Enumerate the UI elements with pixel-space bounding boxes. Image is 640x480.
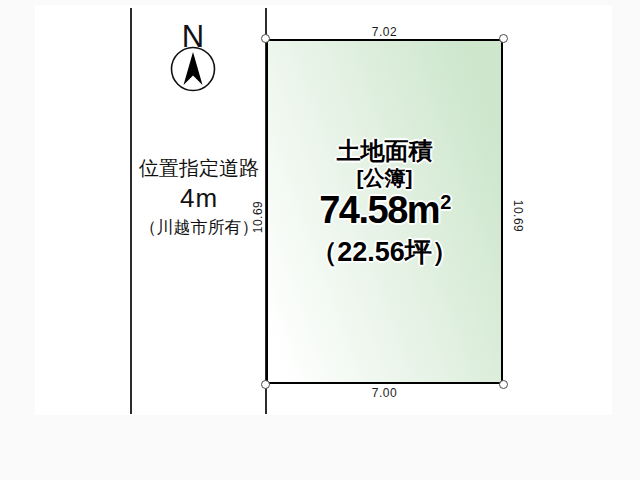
compass: N	[166, 16, 220, 94]
dimension-bottom: 7.00	[266, 386, 503, 400]
area-title-label: 土地面積	[268, 137, 501, 165]
dimension-left: 10.69	[251, 197, 265, 237]
area-tsubo-label: （22.56坪）	[268, 236, 501, 268]
dimension-right: 10.69	[511, 196, 525, 236]
area-m2-superscript: 2	[440, 191, 450, 213]
area-value-label: 74.58m2	[268, 190, 501, 236]
dimension-top: 7.02	[266, 25, 503, 39]
diagram-canvas: N 位置指定道路 4m （川越市所有） 土地面積 [公簿] 74.58m2 （2…	[35, 5, 612, 415]
area-m2-text: 74.58m	[319, 189, 439, 231]
road-name-label: 位置指定道路	[132, 157, 266, 180]
land-plot: 土地面積 [公簿] 74.58m2 （22.56坪）	[266, 39, 503, 384]
register-label: [公簿]	[268, 165, 501, 190]
road-owner-label: （川越市所有）	[132, 217, 266, 239]
road-label: 位置指定道路 4m （川越市所有）	[132, 157, 266, 239]
compass-icon: N	[166, 16, 220, 94]
road-width-label: 4m	[132, 183, 266, 213]
compass-needle-icon	[184, 52, 203, 85]
plot-area-text: 土地面積 [公簿] 74.58m2 （22.56坪）	[268, 137, 501, 268]
